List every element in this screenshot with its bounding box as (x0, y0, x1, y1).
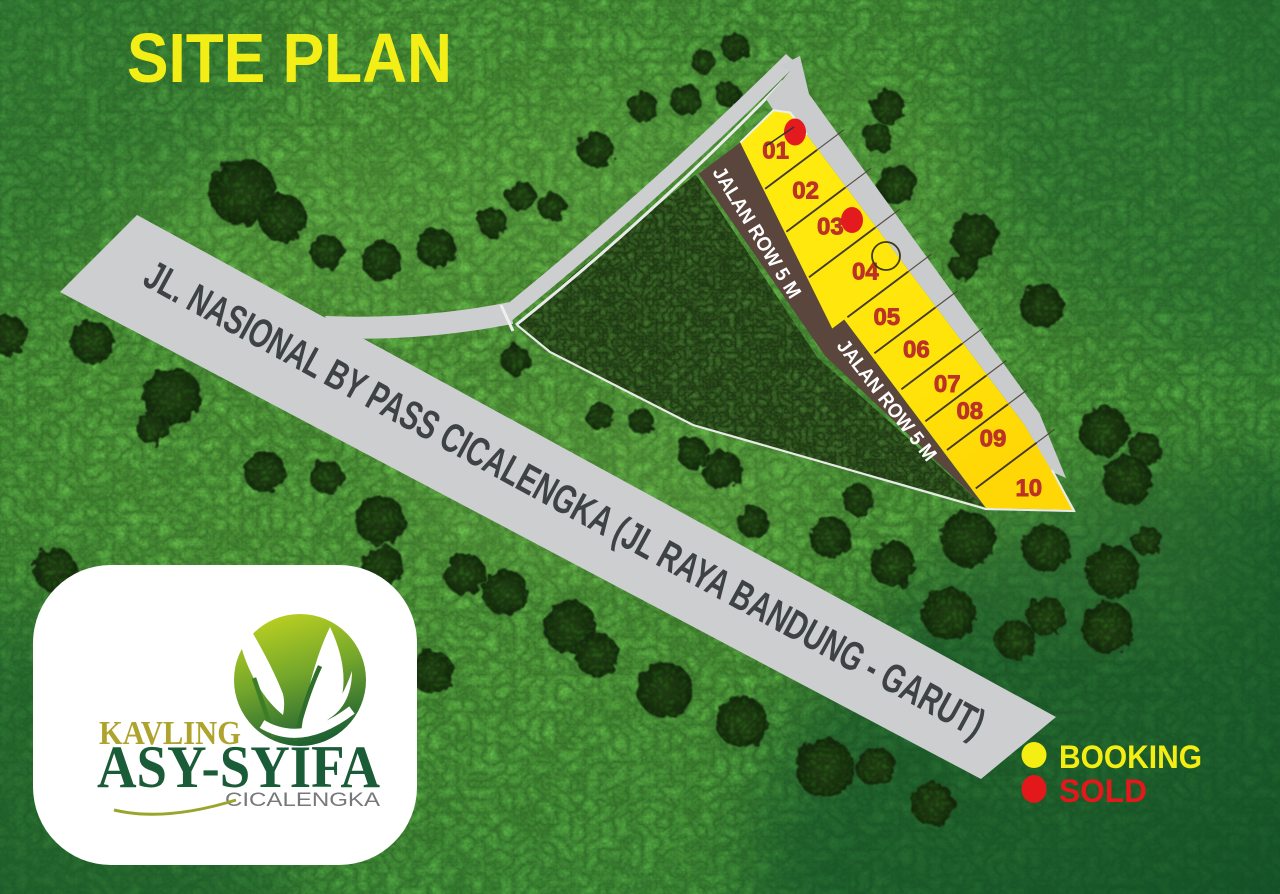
svg-text:CICALENGKA: CICALENGKA (225, 790, 380, 811)
svg-text:03: 03 (817, 214, 844, 241)
svg-text:08: 08 (956, 398, 983, 425)
svg-text:05: 05 (873, 304, 900, 331)
svg-text:01: 01 (762, 137, 789, 164)
svg-text:10: 10 (1015, 475, 1042, 502)
svg-text:06: 06 (903, 337, 930, 364)
svg-text:07: 07 (934, 371, 961, 398)
svg-text:04: 04 (852, 259, 879, 286)
svg-text:02: 02 (792, 177, 819, 204)
svg-text:09: 09 (980, 426, 1007, 453)
svg-text:BOOKING: BOOKING (1059, 739, 1202, 775)
svg-text:SITE PLAN: SITE PLAN (127, 19, 452, 97)
svg-text:SOLD: SOLD (1059, 773, 1147, 809)
